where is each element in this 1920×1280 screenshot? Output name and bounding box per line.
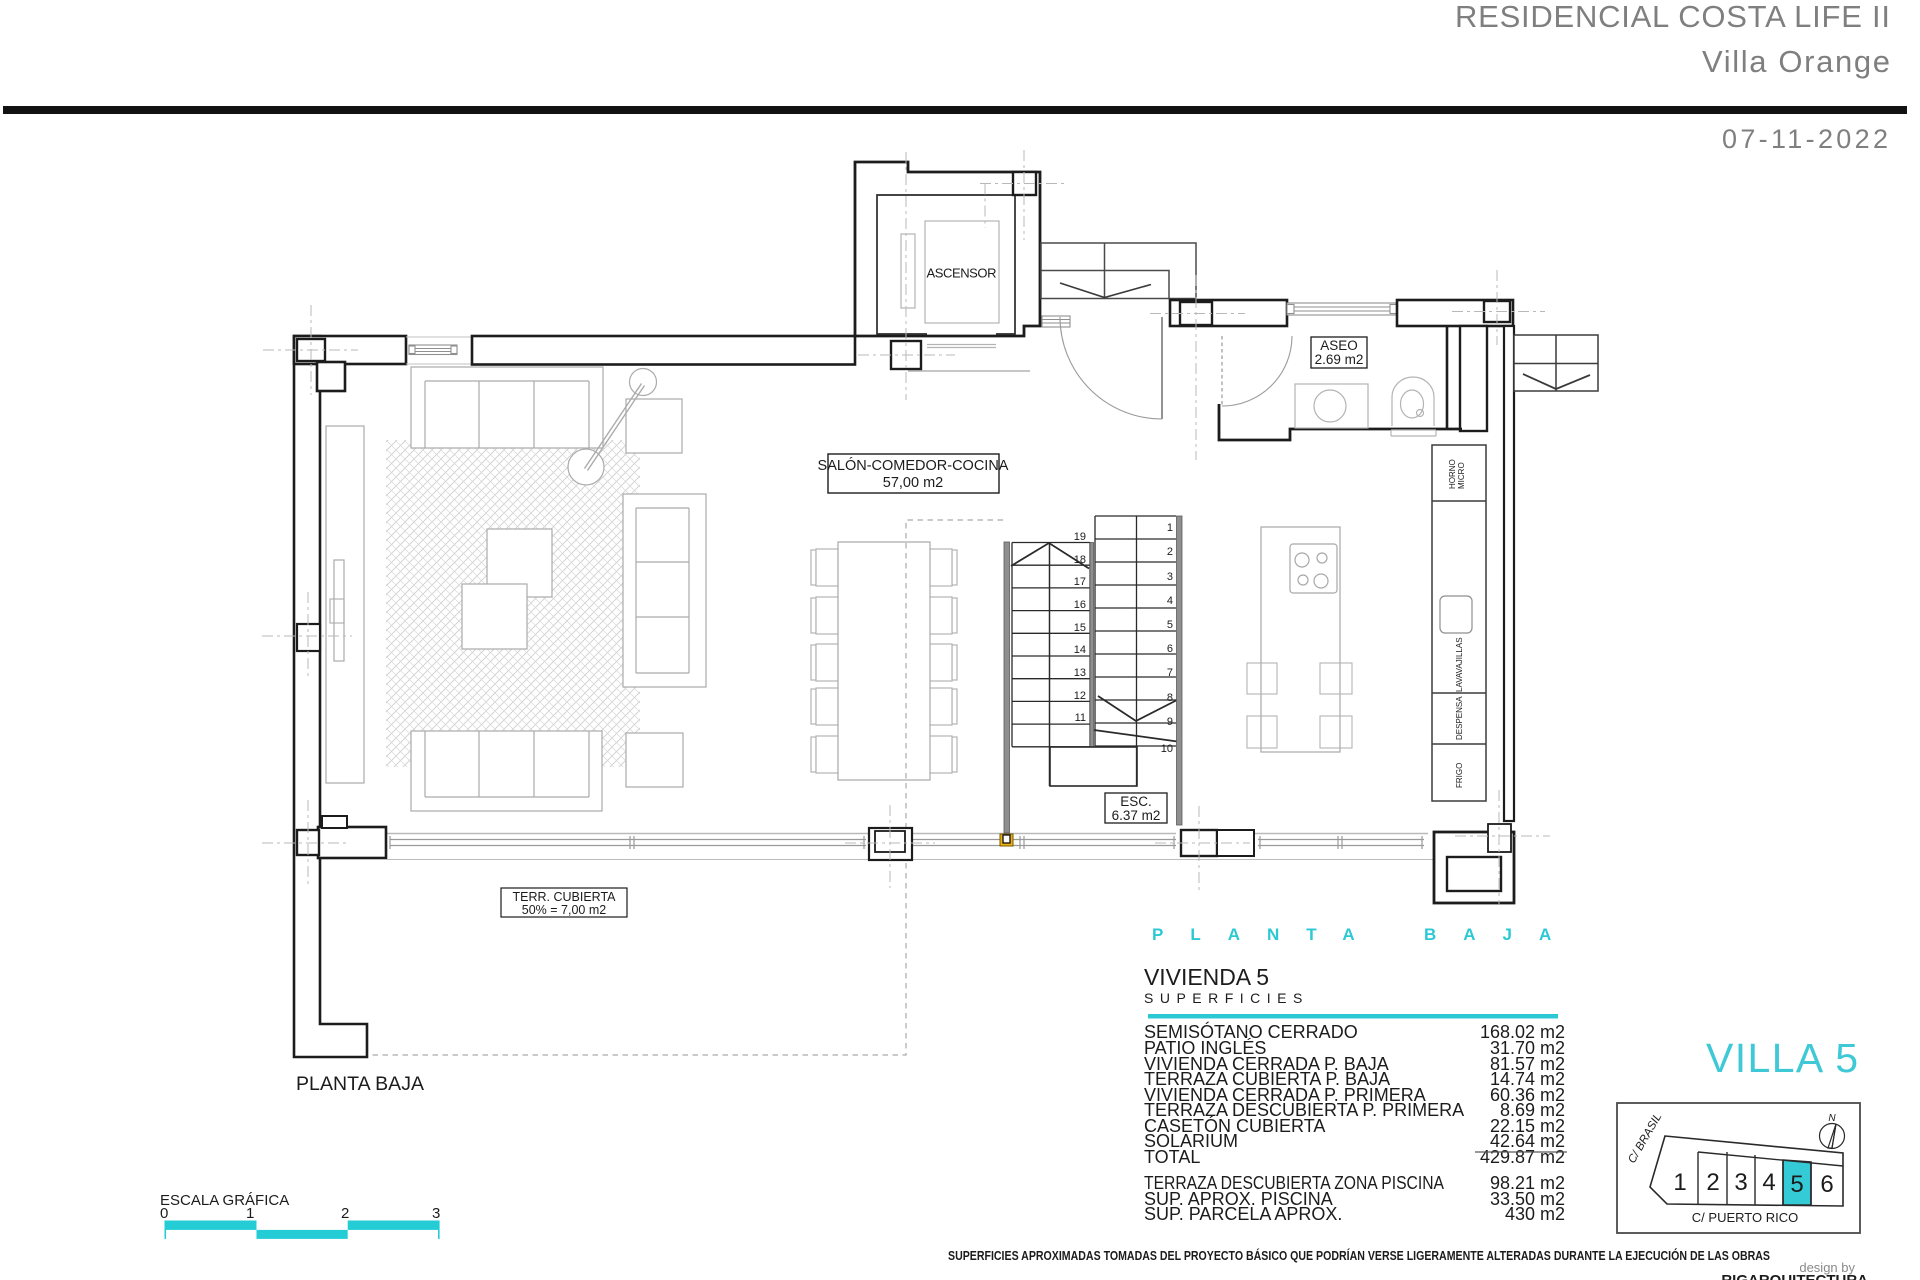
svg-text:BAJA: BAJA [1424,925,1578,944]
svg-text:15: 15 [1074,622,1086,634]
svg-text:57,00 m2: 57,00 m2 [883,475,943,491]
svg-text:SALÓN-COMEDOR-COCINA: SALÓN-COMEDOR-COCINA [818,457,1009,474]
svg-text:07-11-2022: 07-11-2022 [1722,124,1888,154]
svg-text:RIGARQUITECTURA: RIGARQUITECTURA [1721,1272,1868,1280]
svg-text:19: 19 [1074,531,1086,543]
svg-text:PLANTA: PLANTA [1152,925,1382,944]
svg-text:N: N [1828,1113,1836,1124]
svg-text:SUPERFICIES APROXIMADAS TOMADA: SUPERFICIES APROXIMADAS TOMADAS DEL PROY… [948,1248,1770,1263]
svg-text:FRIGO: FRIGO [1455,763,1464,788]
svg-text:3: 3 [432,1205,440,1222]
svg-text:HORNO: HORNO [1448,459,1457,489]
svg-text:3: 3 [1167,571,1173,583]
svg-text:TERR. CUBIERTA: TERR. CUBIERTA [512,890,616,904]
svg-text:0: 0 [160,1205,168,1222]
svg-text:4: 4 [1762,1169,1775,1196]
svg-text:18: 18 [1074,554,1086,566]
svg-text:2: 2 [341,1205,349,1222]
svg-text:430 m2: 430 m2 [1505,1204,1565,1224]
svg-text:12: 12 [1074,690,1086,702]
svg-text:13: 13 [1074,667,1086,679]
svg-text:5: 5 [1167,619,1173,631]
svg-text:SUP. PARCELA APROX.: SUP. PARCELA APROX. [1144,1204,1342,1224]
svg-text:PLANTA BAJA: PLANTA BAJA [296,1073,424,1095]
svg-text:9: 9 [1167,716,1173,728]
svg-text:6: 6 [1820,1171,1833,1198]
svg-text:7: 7 [1167,667,1173,679]
svg-text:VIVIENDA 5: VIVIENDA 5 [1144,964,1269,990]
svg-text:6.37 m2: 6.37 m2 [1112,808,1161,823]
svg-text:1: 1 [1673,1169,1686,1196]
svg-text:5: 5 [1790,1171,1803,1198]
svg-text:3: 3 [1734,1169,1747,1196]
svg-text:11: 11 [1075,712,1086,724]
svg-text:2: 2 [1706,1169,1719,1196]
svg-text:TOTAL: TOTAL [1144,1147,1200,1167]
svg-text:Villa Orange: Villa Orange [1702,44,1890,79]
svg-text:RESIDENCIAL COSTA LIFE II: RESIDENCIAL COSTA LIFE II [1455,0,1890,34]
svg-text:4: 4 [1167,595,1173,607]
svg-text:ESCALA GRÁFICA: ESCALA GRÁFICA [160,1192,289,1209]
svg-text:ASEO: ASEO [1320,338,1358,353]
svg-text:ESC.: ESC. [1120,794,1152,809]
svg-text:14: 14 [1074,644,1086,656]
svg-text:C/ PUERTO RICO: C/ PUERTO RICO [1692,1210,1798,1225]
svg-text:ASCENSOR: ASCENSOR [927,266,997,281]
svg-text:VILLA 5: VILLA 5 [1706,1035,1858,1081]
svg-text:MICRO: MICRO [1457,462,1466,489]
svg-text:429.87 m2: 429.87 m2 [1480,1147,1565,1167]
svg-text:LAVAVAJILLAS: LAVAVAJILLAS [1455,637,1464,692]
svg-text:50% = 7,00 m2: 50% = 7,00 m2 [522,903,606,917]
svg-text:1: 1 [1167,522,1173,534]
svg-text:DESPENSA: DESPENSA [1455,696,1464,740]
svg-text:10: 10 [1161,743,1173,755]
svg-text:2.69 m2: 2.69 m2 [1315,352,1364,367]
svg-text:6: 6 [1167,643,1173,655]
svg-text:SUPERFICIES: SUPERFICIES [1144,990,1309,1006]
svg-text:16: 16 [1074,599,1086,611]
svg-text:17: 17 [1074,576,1086,588]
svg-text:1: 1 [246,1205,254,1222]
svg-text:2: 2 [1167,546,1173,558]
svg-text:8: 8 [1167,692,1173,704]
